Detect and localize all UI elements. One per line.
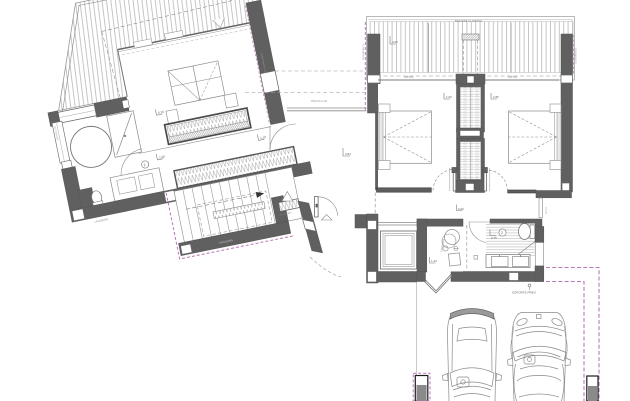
svg-text:0.75: 0.75 xyxy=(491,236,497,240)
svg-text:2: 2 xyxy=(501,231,503,235)
svg-text:1.00: 1.00 xyxy=(446,95,452,99)
svg-text:165*200: 165*200 xyxy=(508,76,518,79)
svg-text:3.84: 3.84 xyxy=(345,152,351,156)
svg-text:PERGOLA 240: PERGOLA 240 xyxy=(311,100,328,103)
svg-text:1.40: 1.40 xyxy=(431,259,437,263)
svg-text:BARANDILLA CRISTAL: BARANDILLA CRISTAL xyxy=(455,19,483,23)
svg-text:165x90: 165x90 xyxy=(545,207,547,215)
svg-text:CERRAMIENTO: CERRAMIENTO xyxy=(574,48,577,64)
svg-text:165*200: 165*200 xyxy=(404,76,414,79)
svg-text:4.00: 4.00 xyxy=(392,40,398,44)
svg-text:CERRAMIENTO: CERRAMIENTO xyxy=(362,44,365,60)
svg-text:2.86: 2.86 xyxy=(493,95,499,99)
svg-text:SOPORTE PREG.: SOPORTE PREG. xyxy=(512,291,537,295)
svg-text:6.00: 6.00 xyxy=(458,207,464,211)
